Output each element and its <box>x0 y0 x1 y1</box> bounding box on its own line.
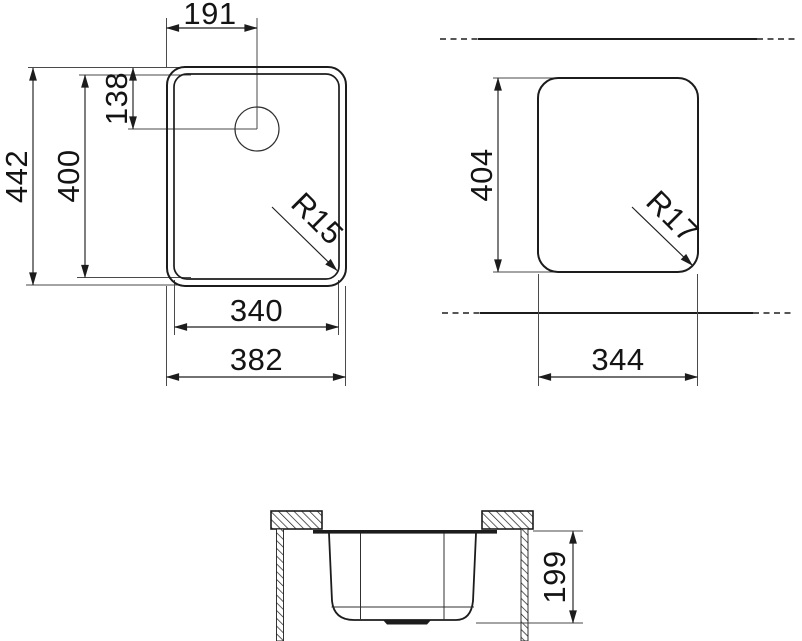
cabinet-panel-left <box>277 529 284 641</box>
dim-label-400: 400 <box>51 149 86 202</box>
dim-bowl-width: 340 <box>175 293 339 328</box>
dim-label-138: 138 <box>99 72 134 125</box>
dim-label-442: 442 <box>0 150 34 203</box>
dim-bowl-height: 400 <box>51 75 86 278</box>
dim-bowl-depth: 199 <box>537 531 573 623</box>
sink-rim-section <box>313 530 497 534</box>
cutout-outline <box>538 78 698 272</box>
drain-stub <box>383 620 431 625</box>
radius-label-r15: R15 <box>284 186 350 252</box>
cabinet-panel-right <box>521 529 528 641</box>
worktop-cutout-view: 404 344 R17 <box>440 39 798 386</box>
sink-technical-drawing: 191 442 400 138 340 382 R15 <box>0 0 802 641</box>
dim-label-199: 199 <box>537 550 572 603</box>
dim-drain-offset-y: 138 <box>99 68 134 129</box>
dim-cutout-width: 344 <box>539 342 698 377</box>
dim-overall-width: 382 <box>167 342 346 377</box>
dim-label-191: 191 <box>183 0 236 31</box>
dim-overall-height: 442 <box>0 68 34 285</box>
dim-label-404: 404 <box>464 148 499 201</box>
drawing-svg: 191 442 400 138 340 382 R15 <box>0 0 802 641</box>
dim-label-382: 382 <box>230 342 283 377</box>
worktop-section-right <box>482 511 533 529</box>
dim-label-344: 344 <box>591 342 644 377</box>
sink-top-view: 191 442 400 138 340 382 R15 <box>0 0 350 386</box>
radius-callout-r17: R17 <box>632 184 705 266</box>
sink-section-view: 199 <box>271 511 583 641</box>
worktop-section-left <box>271 511 322 529</box>
radius-label-r17: R17 <box>639 184 705 250</box>
dim-drain-offset-x: 191 <box>167 0 258 31</box>
dim-cutout-height: 404 <box>464 78 499 272</box>
dim-label-340: 340 <box>230 293 283 328</box>
